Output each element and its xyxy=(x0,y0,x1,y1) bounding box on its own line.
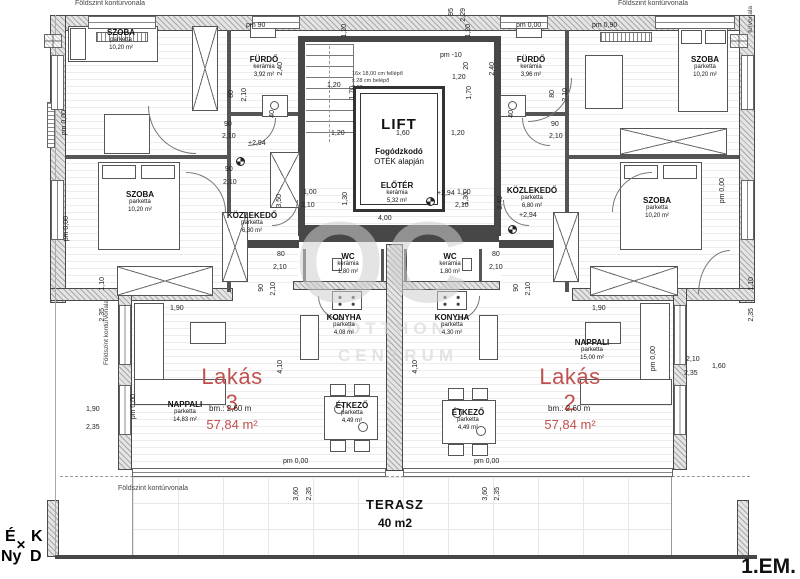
dimension-label: 3,50 xyxy=(276,194,283,208)
dimension-label: 80 xyxy=(549,90,556,98)
room-label-szoba-mid-right: SZOBAparketta10,20 m² xyxy=(643,196,671,220)
room-label-eloter: ELŐTÉRkerámia5,32 m² xyxy=(381,181,413,205)
room-label-nappali-right: NAPPALIparketta15,00 m² xyxy=(575,338,610,362)
room-name: SZOBA xyxy=(107,28,135,37)
window xyxy=(674,385,686,435)
window xyxy=(674,305,686,365)
window xyxy=(51,55,64,110)
room-detail: parketta xyxy=(227,220,277,227)
wardrobe xyxy=(117,266,213,296)
elevator-note-1: Fogódzkodó xyxy=(361,147,437,156)
sofa xyxy=(134,303,164,387)
dimension-label: 1,30 xyxy=(342,192,349,206)
room-label-konyha-right: KONYHAparketta4,30 m² xyxy=(435,313,470,337)
dimension-label: 2,35 xyxy=(748,308,755,322)
dimension-label: 1,10 xyxy=(99,277,106,291)
dimension-label: 1,90 xyxy=(170,305,184,312)
radiator xyxy=(600,32,652,42)
room-detail: parketta xyxy=(435,322,470,329)
dimension-label: pm 0,00 xyxy=(650,346,657,371)
room-detail: kerámia xyxy=(517,64,545,71)
dimension-label: 2,40 xyxy=(489,62,496,76)
terrace-pillar-right xyxy=(737,500,749,557)
chair xyxy=(330,384,346,396)
stair-note-line1: 16x 18,00 cm fellépő xyxy=(352,71,403,78)
compass-east: K xyxy=(31,528,43,546)
room-name: KONYHA xyxy=(435,313,470,322)
room-name: KONYHA xyxy=(327,313,362,322)
room-name: ÉTKEZŐ xyxy=(452,408,484,417)
dimension-label: 90 xyxy=(258,284,265,292)
dimension-label: 2,10 xyxy=(562,88,569,102)
dimension-label: +2,94 xyxy=(519,212,537,219)
contour-label-right-vertical: túrvonala xyxy=(747,6,754,33)
staircase xyxy=(306,44,354,135)
dimension-label: +2,94 xyxy=(437,190,455,197)
contour-label-bottom: Földszint kontúrvonala xyxy=(118,485,188,492)
dimension-label: 2,10 xyxy=(222,133,236,140)
dimension-label: 4,10 xyxy=(412,360,419,374)
dimension-label: pm 0,00 xyxy=(719,178,726,203)
pillow xyxy=(102,165,136,179)
dimension-label: pm 90 xyxy=(246,22,265,29)
pillow xyxy=(663,165,697,179)
room-label-kozlekedo-left: KÖZLEKEDŐparketta6,30 m² xyxy=(227,211,277,235)
compass-south: D xyxy=(30,548,42,566)
room-detail: 4,30 m² xyxy=(435,330,470,337)
dimension-label: 2,35 xyxy=(684,370,698,377)
dimension-label: 95 xyxy=(448,8,455,16)
chair xyxy=(330,440,346,452)
room-name: SZOBA xyxy=(691,55,719,64)
dimension-label: 2,10 xyxy=(273,264,287,271)
window xyxy=(655,16,735,29)
dimension-label: 90 xyxy=(513,284,520,292)
shower-drain xyxy=(508,101,517,110)
wardrobe xyxy=(590,266,678,296)
stair-note-line2: x 28 cm belépő xyxy=(352,78,389,85)
dimension-label: 80 xyxy=(277,251,285,258)
dimension-label: 2,35 xyxy=(99,308,106,322)
room-label-kozlekedo-right: KÖZLEKEDŐparketta6,80 m² xyxy=(507,186,557,210)
room-detail: parketta xyxy=(327,322,362,329)
room-detail: 10,20 m² xyxy=(691,72,719,79)
room-detail: 4,49 m² xyxy=(336,418,368,425)
dimension-label: 1,20 xyxy=(331,130,345,137)
room-detail: kerámia xyxy=(439,261,460,268)
dimension-label: 1,90 xyxy=(86,406,100,413)
dimension-label: 4,10 xyxy=(277,360,284,374)
dimension-label: 2,10 xyxy=(270,282,277,296)
apartment-area: 57,84 m² xyxy=(534,417,606,432)
dimension-label: 1,60 xyxy=(396,130,410,137)
terrace-name: TERASZ xyxy=(345,497,445,512)
room-detail: 15,00 m² xyxy=(575,355,610,362)
dresser xyxy=(104,114,150,154)
level-benchmark-icon xyxy=(236,157,245,166)
dimension-label: 2,10 xyxy=(549,133,563,140)
room-detail: 4,08 m² xyxy=(327,330,362,337)
stair-walkline xyxy=(329,46,330,142)
dimension-label: 90 xyxy=(225,166,233,173)
room-detail: parketta xyxy=(336,410,368,417)
room-detail: parketta xyxy=(452,417,484,424)
room-name: FÜRDŐ xyxy=(517,55,545,64)
room-detail: 10,20 m² xyxy=(126,207,154,214)
ceiling-height-label: bm.: 2,60 m xyxy=(548,404,590,413)
window xyxy=(741,180,754,240)
room-label-szoba-top-left: SZOBAparketta10,20 m² xyxy=(107,28,135,52)
dimension-label: 3,40 xyxy=(497,196,504,210)
room-label-furdo-right: FÜRDŐkerámia3,96 m² xyxy=(517,55,545,79)
dimension-label: 80 xyxy=(492,251,500,258)
room-detail: 1,80 m² xyxy=(439,269,460,276)
terrace-pillar-left xyxy=(47,500,59,557)
dimension-label: pm 0,00 xyxy=(61,110,68,135)
dimension-label: 2,40 xyxy=(277,62,284,76)
room-name: ELŐTÉR xyxy=(381,181,413,190)
room-detail: 6,30 m² xyxy=(227,228,277,235)
apartment-label-lakas-3: Lakás 3 57,84 m² xyxy=(196,364,268,432)
dimension-label: 1,60 xyxy=(712,363,726,370)
dimension-label: pm 0,00 xyxy=(283,458,308,465)
chair xyxy=(354,440,370,452)
dimension-label: 4,00 xyxy=(378,215,392,222)
room-detail: 10,20 m² xyxy=(643,213,671,220)
window xyxy=(119,305,131,365)
room-label-szoba-top-right: SZOBAparketta10,20 m² xyxy=(691,55,719,79)
room-name: WC xyxy=(439,252,460,261)
apartment-area: 57,84 m² xyxy=(196,417,268,432)
dimension-label: 20 xyxy=(463,62,470,70)
level-benchmark-icon xyxy=(508,225,517,234)
room-label-etkezo-right: ÉTKEZŐparketta4,49 m² xyxy=(452,408,484,432)
room-detail: 3,96 m² xyxy=(517,72,545,79)
dimension-label: 1,20 xyxy=(465,24,472,38)
refrigerator xyxy=(300,315,319,360)
room-detail: 6,80 m² xyxy=(507,203,557,210)
room-name: NAPPALI xyxy=(575,338,610,347)
dimension-label: 2,10 xyxy=(525,282,532,296)
ceiling-height-label: bm.: 2,60 m xyxy=(209,404,251,413)
wardrobe xyxy=(553,212,579,282)
dimension-label: 1,20 xyxy=(341,24,348,38)
dimension-label: 2,10 xyxy=(241,88,248,102)
dimension-label: 2,35 xyxy=(306,487,313,501)
chair xyxy=(472,444,488,456)
chair xyxy=(472,388,488,400)
dimension-label: 40 xyxy=(508,110,515,118)
dimension-label: 2,29 xyxy=(460,8,467,22)
room-detail: kerámia xyxy=(381,190,413,197)
room-detail: parketta xyxy=(126,199,154,206)
dimension-label: 2,35 xyxy=(86,424,100,431)
room-detail: 1,80 m² xyxy=(337,269,358,276)
terrace-label: TERASZ 40 m2 xyxy=(345,497,445,530)
window xyxy=(741,55,754,110)
room-label-etkezo-left: ÉTKEZŐparketta4,49 m² xyxy=(336,401,368,425)
level-benchmark-icon xyxy=(426,197,435,206)
dimension-label: 1,00 xyxy=(303,189,317,196)
room-detail: parketta xyxy=(691,64,719,71)
bottom-boundary-line xyxy=(55,555,757,559)
dimension-label: pm 0,90 xyxy=(592,22,617,29)
room-detail: kerámia xyxy=(337,261,358,268)
dimension-label: pm 0,00 xyxy=(63,216,70,241)
dimension-label: 2,10 xyxy=(686,356,700,363)
room-detail: parketta xyxy=(575,347,610,354)
dimension-label: 1,20 xyxy=(451,130,465,137)
pillow xyxy=(681,30,702,44)
room-label-wc-right: WCkerámia1,80 m² xyxy=(439,252,460,276)
wall-wc-right-a xyxy=(404,249,407,282)
room-detail: 10,20 m² xyxy=(107,45,135,52)
room-name: FÜRDŐ xyxy=(250,55,278,64)
wardrobe xyxy=(192,26,218,111)
room-label-szoba-mid-left: SZOBAparketta10,20 m² xyxy=(126,190,154,214)
floor-number-label: 1.EM. xyxy=(741,555,796,579)
pillow xyxy=(141,165,175,179)
dimension-label: 90 xyxy=(551,121,559,128)
wardrobe xyxy=(620,128,727,155)
dimension-label: pm 0,00 xyxy=(516,22,541,29)
chair xyxy=(448,444,464,456)
room-label-konyha-left: KONYHAparketta4,08 m² xyxy=(327,313,362,337)
room-name: ÉTKEZŐ xyxy=(336,401,368,410)
room-detail: parketta xyxy=(507,195,557,202)
room-detail: parketta xyxy=(643,205,671,212)
room-name: WC xyxy=(337,252,358,261)
room-detail: 5,32 m² xyxy=(381,198,413,205)
room-name: NAPPALI xyxy=(168,400,203,409)
dresser xyxy=(585,55,623,109)
apartment-label-lakas-2: Lakás 2 57,84 m² xyxy=(534,364,606,432)
room-label-nappali-left: NAPPALIparketta14,83 m² xyxy=(168,400,203,424)
dimension-label: pm 0,00 xyxy=(474,458,499,465)
room-name: SZOBA xyxy=(643,196,671,205)
dimension-label: 3,60 xyxy=(293,487,300,501)
pillow xyxy=(705,30,726,44)
dimension-label: 1,30 xyxy=(463,192,470,206)
party-wall-stem xyxy=(386,244,403,471)
dimension-label: 40 xyxy=(269,110,276,118)
room-detail: 14,83 m² xyxy=(168,417,203,424)
sofa xyxy=(640,303,670,387)
wall-wc-left-b xyxy=(381,249,384,282)
dimension-label: +2,94 xyxy=(248,140,266,147)
room-name: KÖZLEKEDŐ xyxy=(227,211,277,220)
room-name: SZOBA xyxy=(126,190,154,199)
dimension-label: 2,10 xyxy=(223,179,237,186)
dimension-label: 1,20 xyxy=(327,82,341,89)
terrace-glazing-right xyxy=(403,468,673,477)
compass-north: É xyxy=(5,528,16,546)
coffee-table xyxy=(190,322,226,344)
room-name: KÖZLEKEDŐ xyxy=(507,186,557,195)
refrigerator xyxy=(479,315,498,360)
dimension-label: 2,10 xyxy=(301,202,315,209)
terrace-area: 40 m2 xyxy=(345,516,445,530)
dimension-label: 90 xyxy=(224,121,232,128)
shower-drain xyxy=(270,101,279,110)
dimension-label: 1,70 xyxy=(466,86,473,100)
dimension-label: 1,90 xyxy=(592,305,606,312)
axis-marker-left xyxy=(44,34,62,48)
floor-plan-canvas: LIFT Fogódzkodó OTÉK alapján 16x 18,00 c… xyxy=(0,0,800,579)
dimension-label: 3,60 xyxy=(482,487,489,501)
room-label-wc-left: WCkerámia1,80 m² xyxy=(337,252,358,276)
dimension-label: 80 xyxy=(228,90,235,98)
room-detail: 4,49 m² xyxy=(452,425,484,432)
contour-label-top-right: Földszint kontúrvonala xyxy=(618,0,688,7)
axis-marker-right xyxy=(730,34,748,48)
chair xyxy=(448,388,464,400)
dimension-label: pm 0,00 xyxy=(130,394,137,419)
elevator-note-2: OTÉK alapján xyxy=(361,157,437,166)
pillow xyxy=(70,28,86,60)
contour-label-top-left: Földszint kontúrvonala xyxy=(75,0,145,7)
dimension-label: 1,20 xyxy=(452,74,466,81)
terrace-glazing-left xyxy=(132,468,386,477)
room-detail: 3,92 m² xyxy=(250,72,278,79)
compass-west: Ny xyxy=(1,548,21,566)
room-detail: parketta xyxy=(107,37,135,44)
dimension-label: 1,70 xyxy=(349,86,356,100)
dimension-label: 1,10 xyxy=(748,277,755,291)
room-label-furdo-left: FÜRDŐkerámia3,92 m² xyxy=(250,55,278,79)
wall-wc-right-b xyxy=(479,249,482,282)
toilet xyxy=(462,258,472,271)
core-wall-tbar xyxy=(299,225,499,242)
dimension-label: 2,10 xyxy=(489,264,503,271)
wall-wc-left-a xyxy=(303,249,306,282)
dimension-label: 2,35 xyxy=(494,487,501,501)
chair xyxy=(354,384,370,396)
room-detail: parketta xyxy=(168,409,203,416)
room-detail: kerámia xyxy=(250,64,278,71)
wall-divider-right-horizontal xyxy=(569,155,739,159)
wall-divider-left-horizontal xyxy=(66,155,227,159)
dimension-label: pm -10 xyxy=(440,52,462,59)
